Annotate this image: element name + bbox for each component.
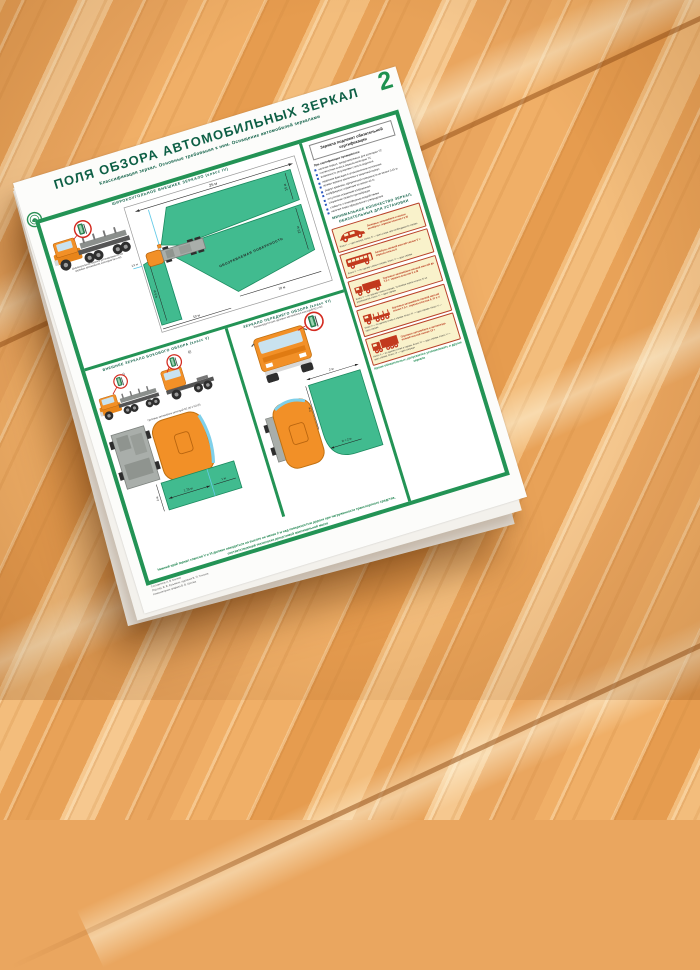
label-b: б)	[187, 350, 191, 355]
bullet-icon	[326, 208, 329, 211]
mirror-callout-icon	[112, 373, 129, 390]
dim-10m-left: 10 м	[193, 313, 201, 319]
fov-polygon-left	[142, 253, 182, 325]
dim-1-5m: 1,5 м	[131, 262, 138, 268]
sheet-number: 2	[375, 66, 397, 98]
bullet-icon	[321, 191, 324, 194]
bullet-icon	[317, 178, 320, 181]
bullet-icon	[315, 173, 318, 176]
dim-2m: 2 м	[155, 496, 160, 502]
bullet-icon	[327, 212, 330, 215]
bullet-icon	[322, 195, 325, 198]
dim-2m-top: 2 м	[328, 367, 334, 372]
bullet-icon	[323, 199, 326, 202]
bullet-icon	[325, 204, 328, 207]
bullet-icon	[314, 169, 317, 172]
dim-10m-right: 10 м	[278, 285, 286, 291]
bullet-icon	[319, 186, 322, 189]
bullet-icon	[318, 182, 321, 185]
